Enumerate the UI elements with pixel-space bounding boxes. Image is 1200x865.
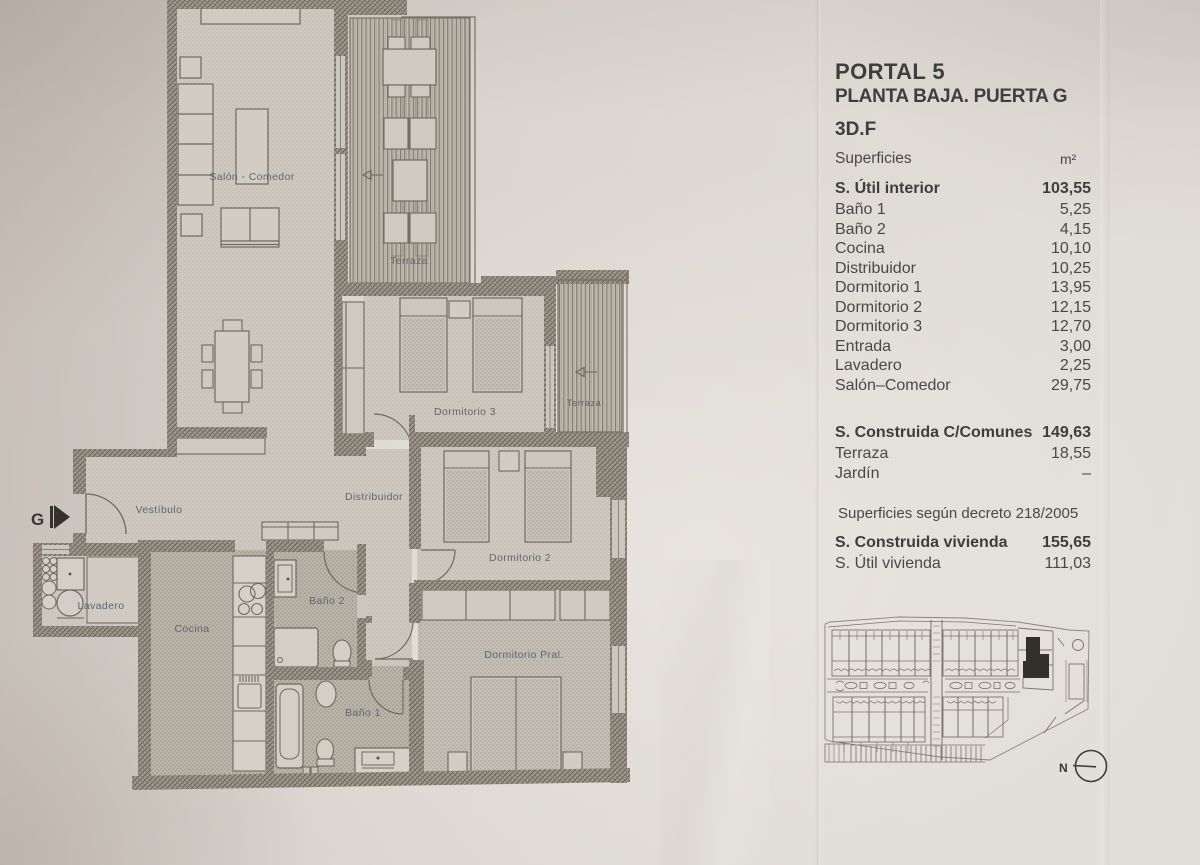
svg-text:Lavadero: Lavadero [78,600,125,612]
svg-text:Dormitorio 3: Dormitorio 3 [434,406,496,418]
svg-text:Vestíbulo: Vestíbulo [136,504,183,516]
svg-text:Baño 2: Baño 2 [309,595,345,607]
svg-text:Cocina: Cocina [174,623,209,635]
svg-text:Terraza: Terraza [567,398,602,409]
svg-text:Baño 1: Baño 1 [345,707,381,719]
svg-text:G: G [31,510,45,529]
svg-text:Salón - Comedor: Salón - Comedor [209,171,294,183]
svg-text:Dormitorio Pral.: Dormitorio Pral. [484,649,563,661]
svg-text:N: N [1059,761,1068,775]
svg-text:Dormitorio 2: Dormitorio 2 [489,552,551,564]
svg-text:Distribuidor: Distribuidor [345,491,403,503]
svg-text:Terraza: Terraza [390,255,428,267]
